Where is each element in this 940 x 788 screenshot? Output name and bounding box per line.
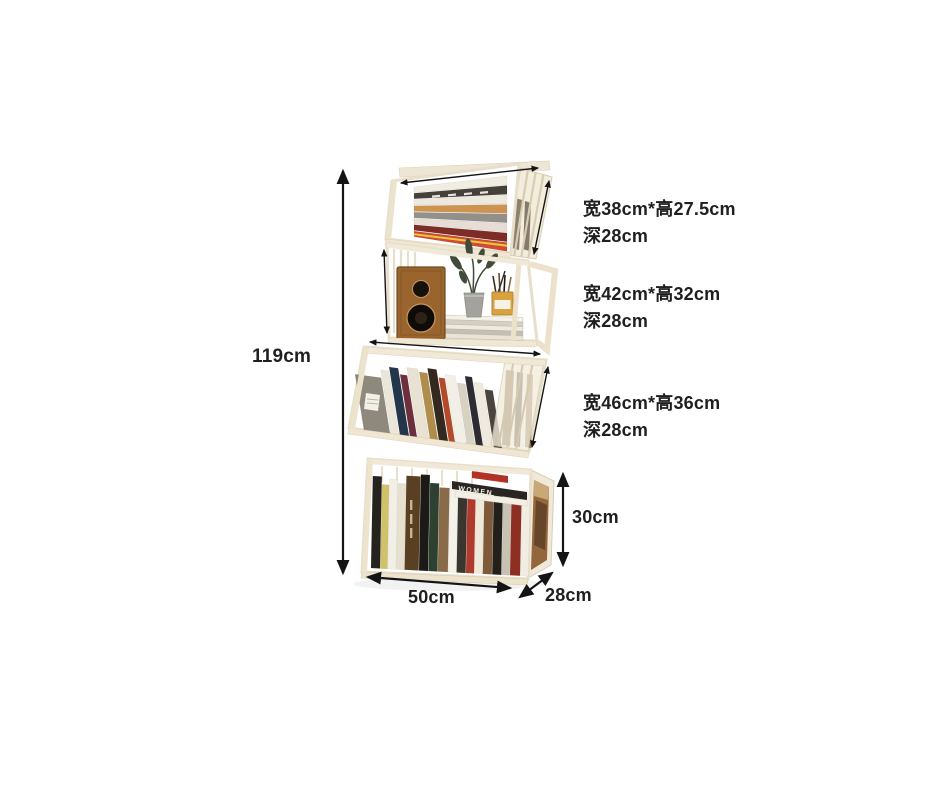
- tier2-spec-label: 宽42cm*高32cm 深28cm: [583, 281, 720, 335]
- book-spine: [466, 495, 476, 573]
- book-spine: [396, 483, 406, 569]
- tier-3-crate: [348, 347, 546, 458]
- tier1-spec-label: 宽38cm*高27.5cm 深28cm: [583, 196, 736, 250]
- book-spine: [474, 491, 484, 573]
- tier1-depth-text: 深28cm: [583, 223, 736, 250]
- book-spine: [510, 497, 522, 576]
- book-spine: [438, 488, 450, 573]
- product-dimension-diagram: WOMEN 119cm 宽38cm*高27.5cm 深28cm 宽42cm*高3…: [0, 0, 940, 788]
- book-spine: [405, 476, 421, 571]
- tier3-spec-label: 宽46cm*高36cm 深28cm: [583, 390, 720, 444]
- book-spine: [428, 483, 439, 571]
- book-spine: [388, 479, 398, 569]
- tier3-depth-text: 深28cm: [583, 417, 720, 444]
- base-depth-label: 28cm: [545, 585, 592, 606]
- tier2-depth-text: 深28cm: [583, 308, 720, 335]
- speaker-icon: [397, 267, 445, 339]
- tier3-size-text: 宽46cm*高36cm: [583, 390, 720, 417]
- book-spine: [520, 494, 530, 576]
- tier2-size-text: 宽42cm*高32cm: [583, 281, 720, 308]
- book-spine: [457, 493, 468, 573]
- tier4-height-label: 30cm: [572, 507, 619, 528]
- tier-4-crate: WOMEN: [361, 459, 554, 585]
- book-spine: [380, 485, 389, 569]
- book-spine: [483, 498, 494, 574]
- book-spine: [502, 501, 511, 575]
- base-width-label: 50cm: [408, 587, 455, 608]
- bookshelf-photo: WOMEN: [0, 0, 940, 788]
- tier1-size-text: 宽38cm*高27.5cm: [583, 196, 736, 223]
- total-height-label: 119cm: [252, 346, 311, 368]
- book-spine: [371, 476, 382, 568]
- book-spine: [419, 475, 430, 571]
- book-spine: [492, 494, 503, 574]
